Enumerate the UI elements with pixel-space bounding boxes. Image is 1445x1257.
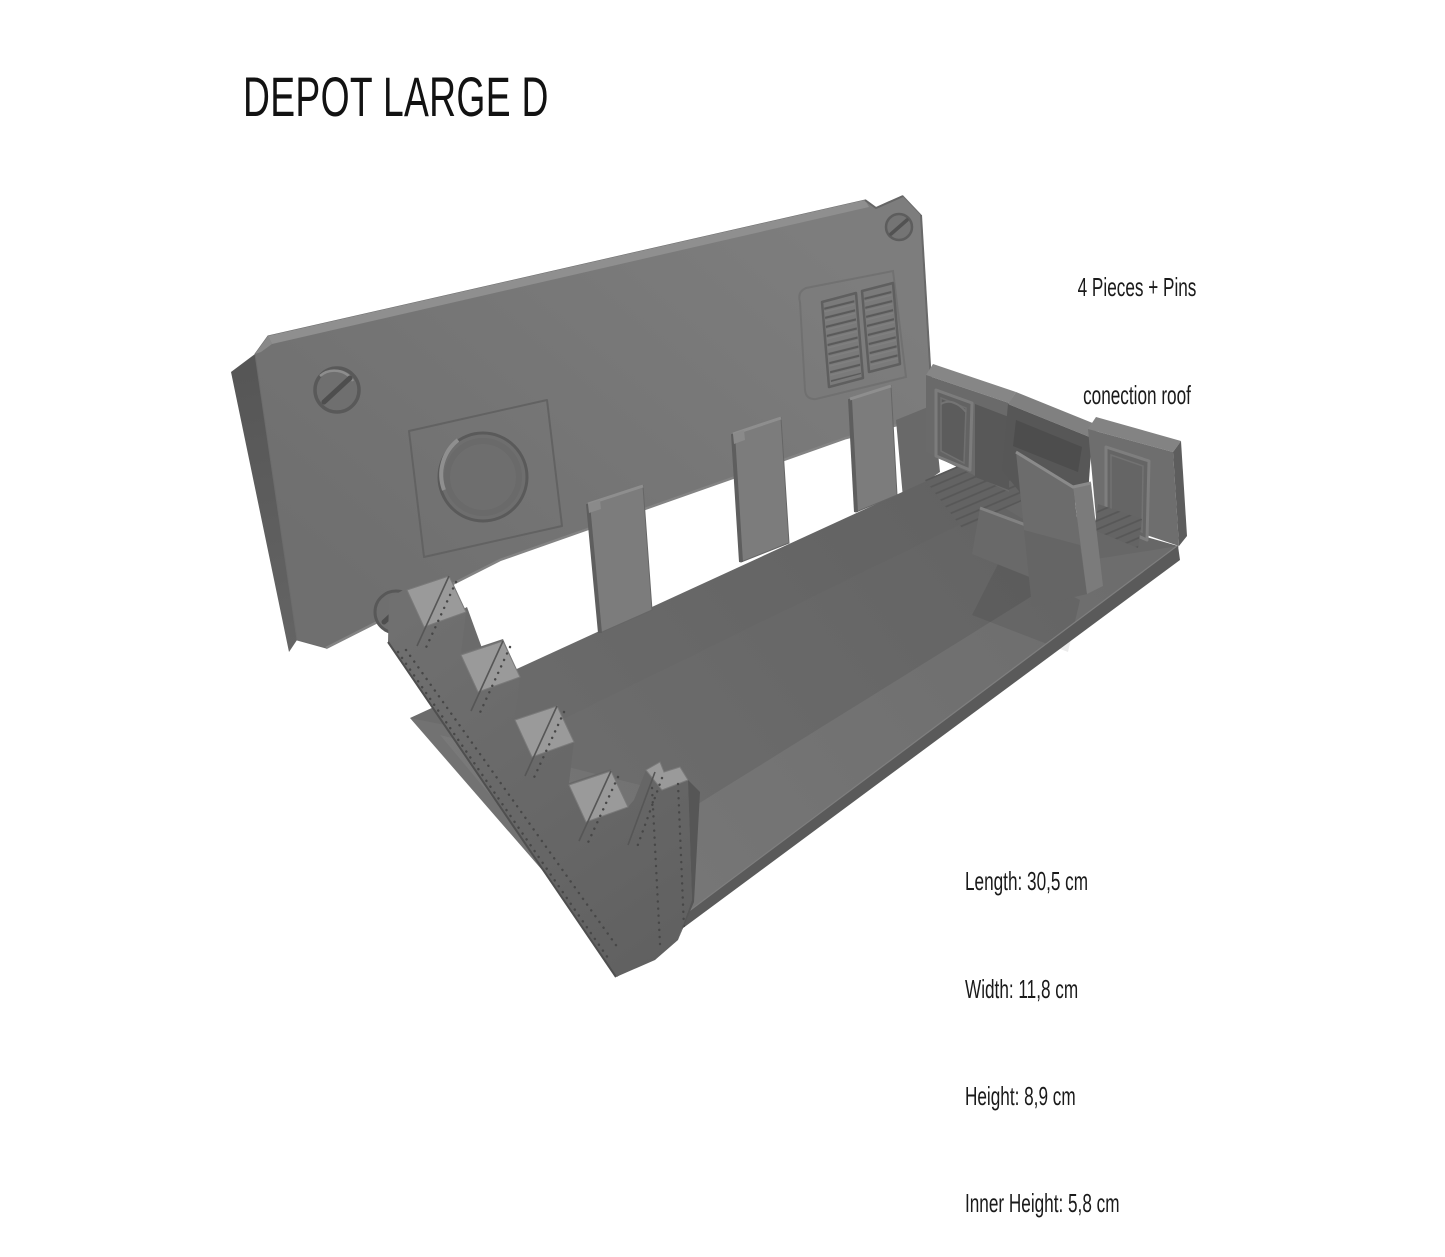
side-door-left	[936, 390, 972, 470]
depot-3d-render	[0, 0, 1445, 1094]
connection-pin-3	[850, 386, 897, 512]
connection-pin-1	[588, 486, 652, 633]
pieces-annotation-line1: 4 Pieces + Pins	[1073, 269, 1201, 305]
depot-product-sheet: DEPOT LARGE D 4 Pieces + Pins conection …	[0, 0, 1445, 1094]
spec-height: Height: 8,9 cm	[965, 1079, 1120, 1115]
pieces-annotation: 4 Pieces + Pins conection roof	[1073, 197, 1201, 449]
spec-inner-height: Inner Height: 5,8 cm	[965, 1186, 1120, 1222]
vent-grille-right	[862, 283, 900, 372]
dimension-specs: Length: 30,5 cm Width: 11,8 cm Height: 8…	[965, 793, 1120, 1257]
corner-screw-top-left	[315, 368, 359, 412]
spec-length: Length: 30,5 cm	[965, 864, 1120, 900]
pieces-annotation-line2: conection roof	[1073, 377, 1201, 413]
vent-grille-left	[822, 293, 863, 387]
corner-screw-top-right	[886, 214, 912, 240]
rear-wall-interior-dark	[975, 404, 1009, 490]
page-title: DEPOT LARGE D	[243, 64, 549, 129]
rear-side-wall-unit	[926, 364, 1016, 492]
spec-width: Width: 11,8 cm	[965, 972, 1120, 1008]
connection-pin-2	[733, 418, 789, 562]
